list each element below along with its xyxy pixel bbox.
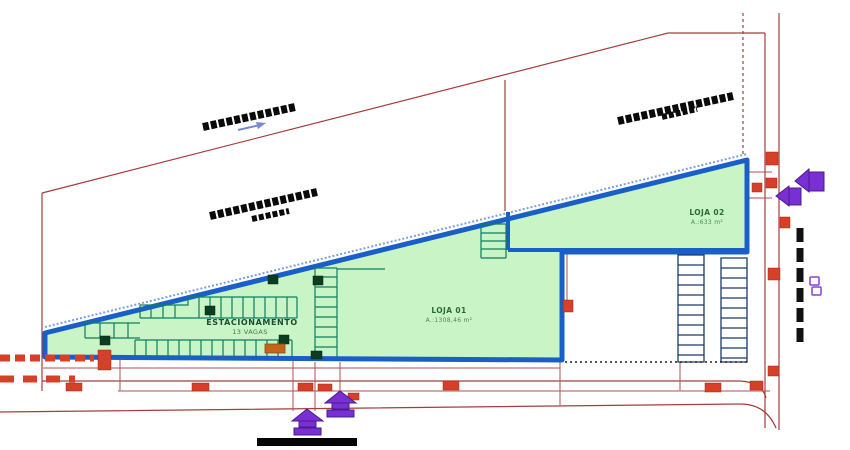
stall-column-a (678, 255, 704, 362)
site-plan-drawing: ESTACIONAMENTO 13 VAGAS LOJA 01 A.:1308,… (0, 0, 850, 450)
column-marker (100, 336, 110, 345)
unit-label-loja01: LOJA 01 (431, 306, 466, 315)
column-marker (279, 335, 289, 344)
red-marker (66, 383, 82, 391)
red-marker (443, 381, 459, 390)
street-label-bar (203, 107, 295, 127)
parking-stalls-exterior (565, 255, 750, 362)
site-plan-canvas: ESTACIONAMENTO 13 VAGAS LOJA 01 A.:1308,… (0, 0, 850, 450)
curb-line-bottom-3 (0, 404, 776, 428)
red-marker (705, 383, 721, 392)
red-marker (768, 268, 780, 280)
curb-line-bottom-1 (42, 381, 766, 398)
unit-area-loja01: A.:1308,46 m² (426, 317, 473, 324)
street-label-bar (618, 96, 733, 121)
red-marker (192, 383, 209, 391)
scale-bar (257, 438, 357, 446)
red-marker (298, 383, 313, 391)
building (45, 154, 747, 360)
door-swing-icon (810, 277, 821, 295)
column-marker (205, 306, 215, 315)
street-label-bar (210, 192, 317, 216)
loading-bay-marker (265, 344, 285, 353)
red-marker (750, 381, 763, 390)
red-marker (766, 178, 777, 188)
column-marker (268, 275, 278, 284)
entrance-arrow-icon (776, 186, 801, 206)
column-marker (313, 276, 323, 285)
red-marker (766, 152, 778, 165)
parking-spaces-label: 13 VAGAS (232, 328, 268, 336)
red-marker (780, 217, 790, 228)
unit-area-loja02: A.:633 m² (691, 219, 724, 226)
boundary-top (42, 33, 765, 193)
unit-label-loja02: LOJA 02 (689, 208, 724, 217)
red-marker (98, 350, 111, 370)
building-footprint (45, 160, 747, 360)
stall-column-b (721, 258, 747, 362)
access-canopy-icon (292, 409, 323, 435)
column-marker (311, 351, 322, 359)
red-marker (318, 384, 332, 391)
direction-arrow-icon (238, 125, 260, 130)
red-marker (768, 366, 779, 376)
street-label-bar (252, 211, 289, 219)
direction-arrow-head (256, 122, 266, 129)
red-marker (563, 300, 573, 312)
parking-label: ESTACIONAMENTO (206, 318, 298, 327)
red-marker (752, 183, 762, 192)
